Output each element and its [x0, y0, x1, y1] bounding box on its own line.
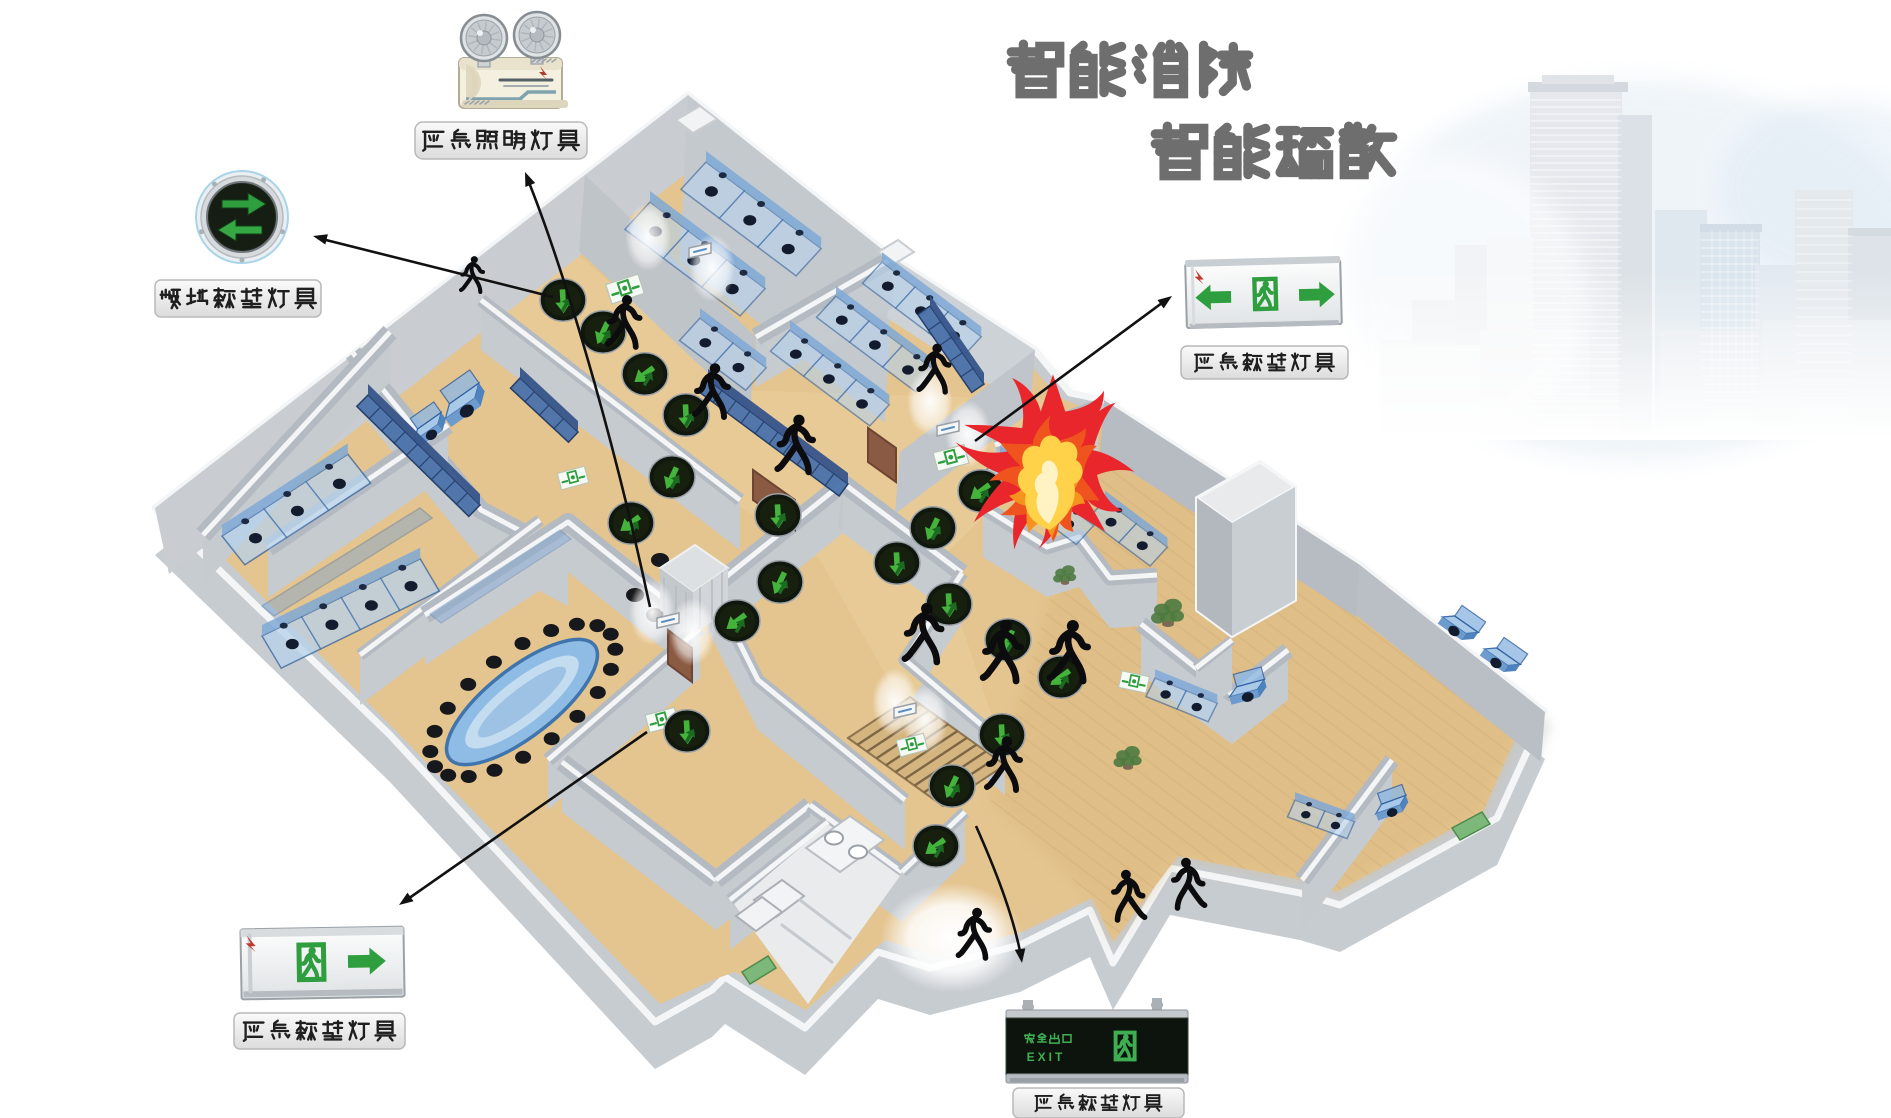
svg-text:EXIT: EXIT: [1027, 1050, 1066, 1064]
